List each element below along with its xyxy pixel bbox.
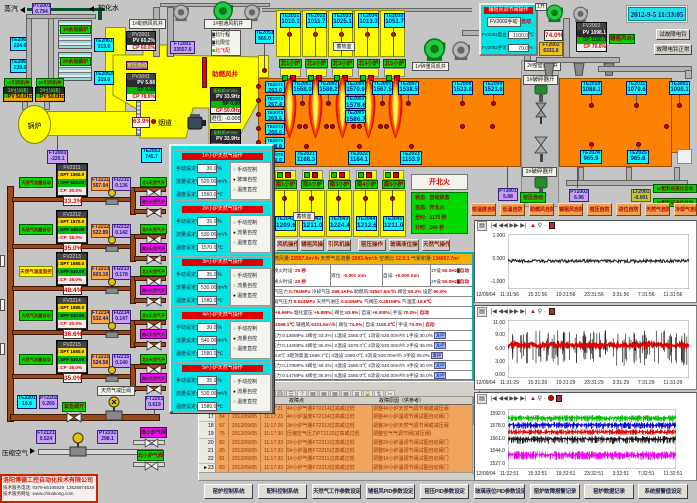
svg-text:锅炉: 锅炉 — [28, 121, 42, 130]
